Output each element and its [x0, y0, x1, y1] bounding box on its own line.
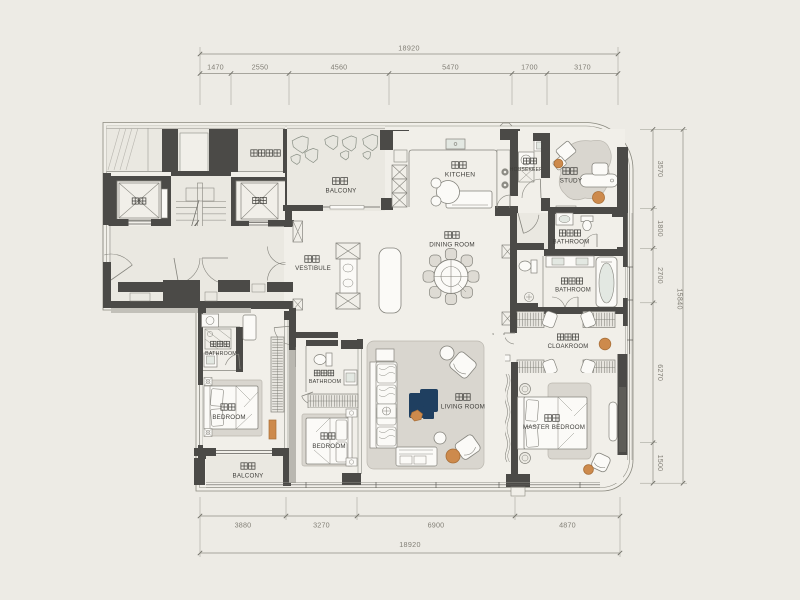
svg-text:2700: 2700 — [656, 267, 665, 284]
svg-text:BATHROOM: BATHROOM — [555, 288, 591, 294]
svg-text:BEDROOM: BEDROOM — [312, 443, 345, 450]
svg-text:MASTER BEDROOM: MASTER BEDROOM — [523, 424, 585, 431]
svg-text:2550: 2550 — [252, 63, 269, 72]
svg-text:18920: 18920 — [399, 540, 421, 549]
svg-text:1470: 1470 — [207, 63, 224, 72]
svg-text:BALCONY: BALCONY — [326, 188, 357, 195]
svg-text:1700: 1700 — [521, 63, 538, 72]
svg-text:3880: 3880 — [235, 521, 252, 530]
svg-text:STUDY: STUDY — [560, 178, 583, 185]
svg-text:3170: 3170 — [574, 63, 591, 72]
svg-text:4560: 4560 — [331, 63, 348, 72]
svg-text:BATHROOM: BATHROOM — [553, 239, 590, 246]
svg-text:6270: 6270 — [656, 364, 665, 381]
svg-text:15840: 15840 — [676, 288, 685, 310]
svg-text:BEDROOM: BEDROOM — [212, 414, 245, 421]
svg-text:1800: 1800 — [656, 220, 665, 237]
svg-text:VESTIBULE: VESTIBULE — [295, 265, 331, 272]
svg-text:1500: 1500 — [656, 455, 665, 472]
svg-text:6900: 6900 — [428, 521, 445, 530]
svg-text:BALCONY: BALCONY — [233, 473, 264, 480]
svg-text:LIVING ROOM: LIVING ROOM — [441, 404, 485, 411]
svg-text:5470: 5470 — [442, 63, 459, 72]
svg-text:KITCHEN: KITCHEN — [445, 172, 475, 179]
svg-text:3570: 3570 — [656, 161, 665, 178]
svg-text:4870: 4870 — [559, 521, 576, 530]
svg-text:BATHROOM: BATHROOM — [309, 379, 342, 385]
svg-text:3270: 3270 — [313, 521, 330, 530]
svg-text:DINING ROOM: DINING ROOM — [429, 242, 475, 249]
svg-text:18920: 18920 — [398, 44, 420, 53]
svg-text:CLOAKROOM: CLOAKROOM — [548, 344, 589, 350]
